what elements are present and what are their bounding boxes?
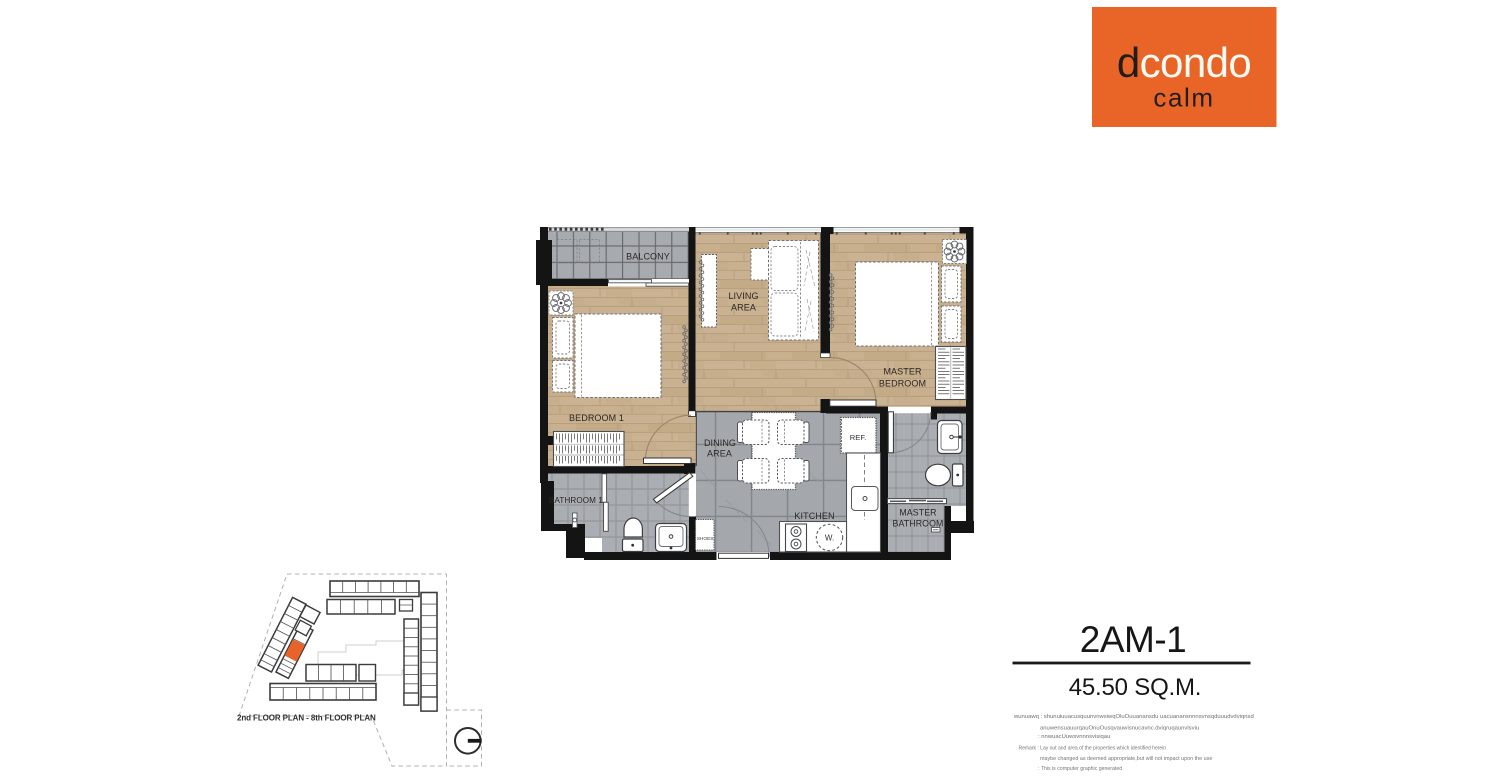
svg-text:DINING: DINING — [704, 438, 736, 448]
svg-text:calm: calm — [1153, 83, 1214, 113]
svg-text:BALCONY: BALCONY — [626, 252, 670, 262]
svg-text:anuwensuauurqauOnuOusqvauwisnu: anuwensuauurqauOnuOusqvauwisnucavnc.dviq… — [1040, 726, 1199, 732]
svg-text:MASTER: MASTER — [899, 508, 936, 518]
svg-text:2AM-1: 2AM-1 — [1080, 619, 1186, 660]
svg-text:wunuawq : shunuiuuacusquunvnws: wunuawq : shunuiuuacusquunvnwsiwqOluOuua… — [1013, 714, 1254, 720]
svg-text:AREA: AREA — [707, 449, 732, 459]
svg-text:SHOES: SHOES — [697, 536, 714, 542]
svg-text:maybe changed as deemed approp: maybe changed as deemed appropriate,but … — [1040, 756, 1212, 762]
svg-text:dcondo: dcondo — [1117, 39, 1251, 86]
svg-text:BEDROOM: BEDROOM — [879, 379, 926, 389]
svg-text:2nd FLOOR PLAN - 8th FLOOR PLA: 2nd FLOOR PLAN - 8th FLOOR PLAN — [237, 714, 376, 723]
svg-text:LIVING: LIVING — [728, 291, 758, 301]
svg-text:: nnwuacUuwsvnnnsvisiqau: : nnwuacUuwsvnnnsvisiqau — [1038, 734, 1110, 740]
svg-text:KITCHEN: KITCHEN — [794, 511, 834, 521]
svg-text:W.: W. — [825, 534, 834, 543]
svg-text:AREA: AREA — [731, 303, 756, 313]
svg-text:: This is computer graphic gen: : This is computer graphic generated — [1038, 766, 1122, 772]
svg-text:BATHROOM 1: BATHROOM 1 — [549, 496, 603, 505]
svg-text:BEDROOM 1: BEDROOM 1 — [569, 413, 624, 423]
svg-text:45.50 SQ.M.: 45.50 SQ.M. — [1069, 674, 1202, 701]
svg-text:MASTER: MASTER — [883, 367, 922, 377]
svg-text:REF.: REF. — [850, 433, 866, 442]
svg-text:Remark : Lay out and area of t: Remark : Lay out and area of the propert… — [1019, 746, 1167, 752]
svg-text:BATHROOM: BATHROOM — [893, 519, 944, 529]
